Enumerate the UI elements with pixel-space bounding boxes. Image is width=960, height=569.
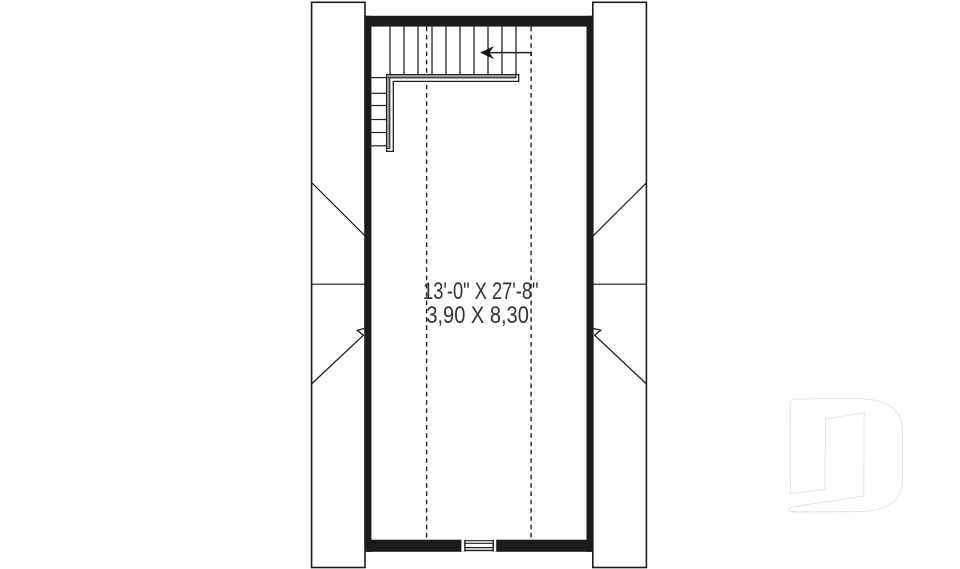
svg-text:3,90 X 8,30: 3,90 X 8,30: [426, 302, 529, 329]
svg-text:13'-0" X 27'-8": 13'-0" X 27'-8": [423, 278, 539, 305]
